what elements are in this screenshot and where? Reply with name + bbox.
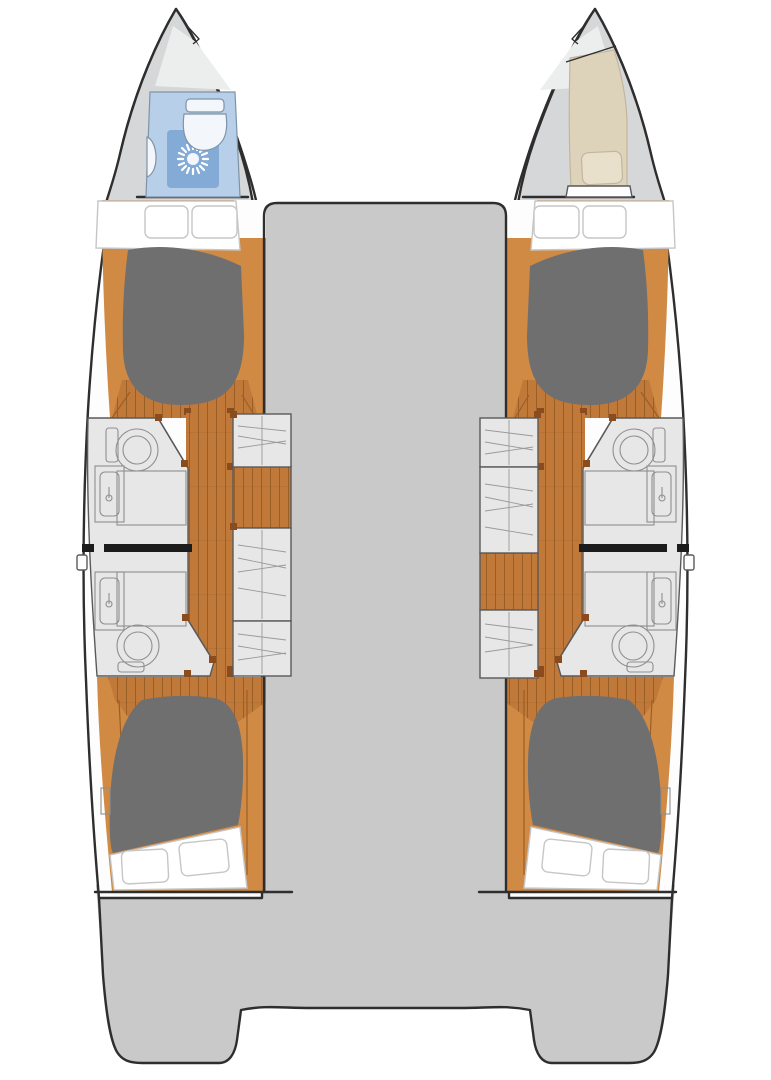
starboard-forward-cabin [505,197,675,418]
wardrobe [233,414,291,467]
hinge [230,411,237,418]
starboard-aft-cabin [479,670,676,892]
floor-plan-canvas [0,0,771,1080]
hinge [534,411,541,418]
starboard-wardrobes [480,411,541,678]
wood-landing [233,466,291,528]
port-aft-cabin [95,670,292,892]
port-wardrobes [230,411,291,676]
bridge-deck [264,203,506,1005]
wardrobe [480,418,538,467]
port-forward-cabin [96,197,266,418]
starboard-bathrooms [537,413,689,677]
port-bathrooms [82,413,234,677]
bridge-deck-fill [264,203,506,1005]
hinge [230,523,237,530]
wardrobe [480,467,538,553]
berth-pillow [581,151,623,185]
toilet-icon [183,99,226,150]
wardrobe [480,610,538,678]
wood-landing [480,553,538,610]
wardrobe [233,621,291,676]
port-bow-head [146,92,240,197]
wardrobe [233,528,291,621]
hinge [534,670,541,677]
catamaran-floor-plan [0,0,771,1080]
berth-foot-step [566,186,632,197]
